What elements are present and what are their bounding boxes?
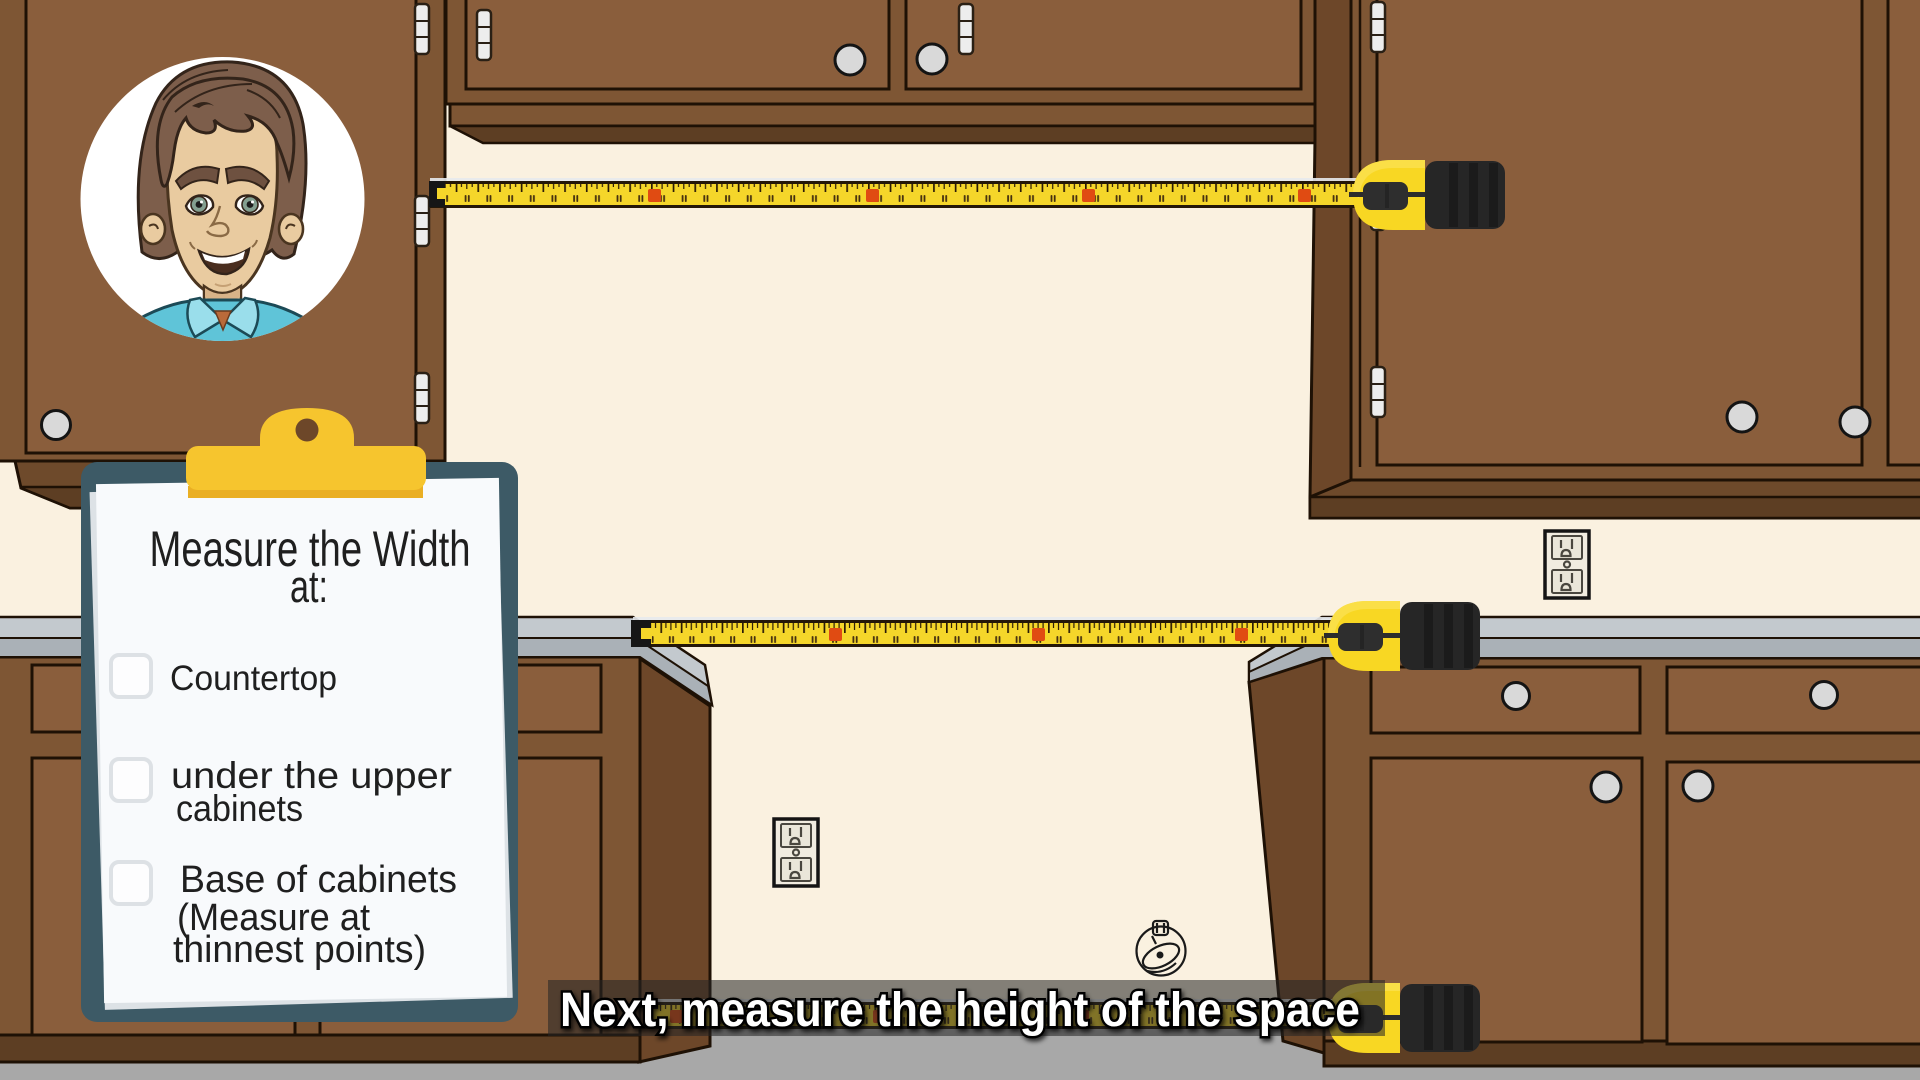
svg-text:thinnest points): thinnest points): [173, 929, 426, 971]
svg-text:Next, measure the height of th: Next, measure the height of the space: [560, 984, 1360, 1037]
svg-text:Countertop: Countertop: [170, 659, 337, 698]
svg-text:at:: at:: [290, 561, 328, 612]
svg-text:cabinets: cabinets: [176, 788, 303, 829]
svg-text:Base of cabinets: Base of cabinets: [180, 859, 457, 901]
